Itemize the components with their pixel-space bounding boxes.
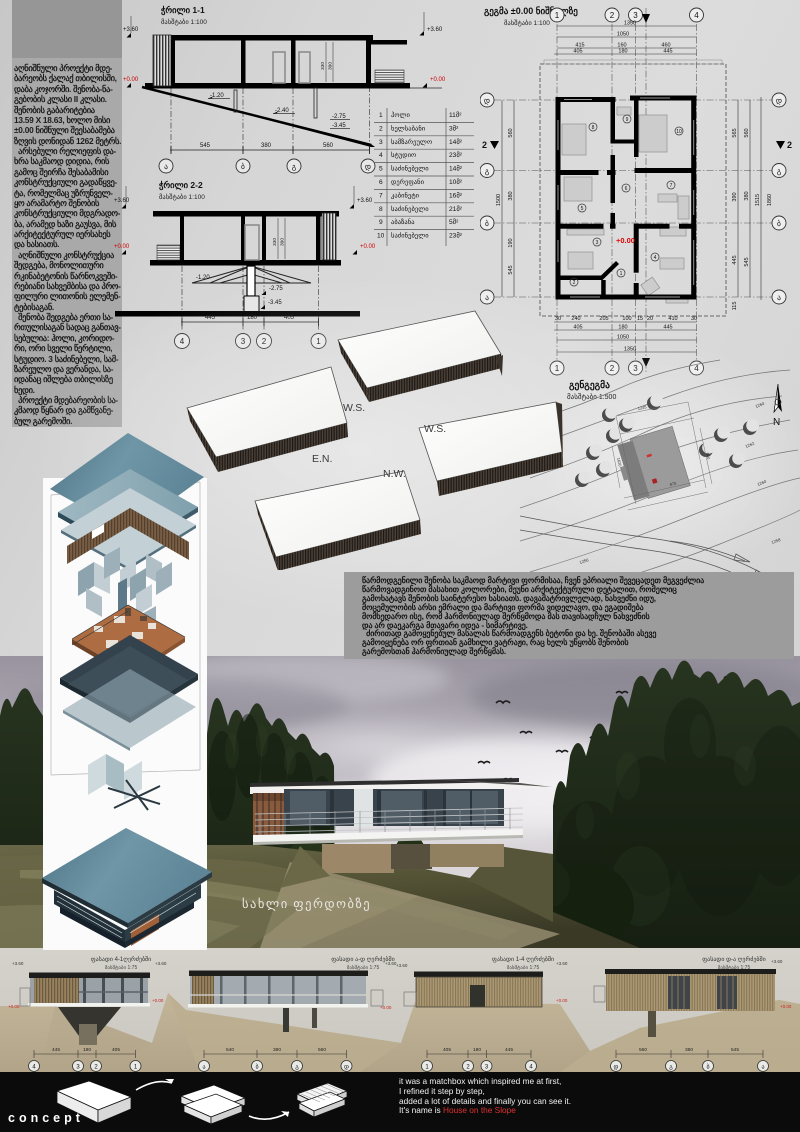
svg-text:1515: 1515: [755, 194, 761, 206]
svg-text:ფასადი 1-4 ღერძებში: ფასადი 1-4 ღერძებში: [492, 955, 554, 963]
svg-text:5მ²: 5მ²: [449, 218, 459, 226]
svg-text:10: 10: [676, 129, 682, 135]
svg-text:დ: დ: [484, 96, 491, 105]
svg-text:ფასადი დ-ა ღერძებში: ფასადი დ-ა ღერძებში: [702, 955, 766, 963]
svg-text:კაბინეტი: კაბინეტი: [391, 191, 420, 199]
svg-text:ბ: ბ: [706, 1063, 709, 1071]
svg-text:მასშტაბი 1:100: მასშტაბი 1:100: [161, 18, 207, 26]
svg-text:მასშტაბი 1:100: მასშტაბი 1:100: [159, 193, 205, 201]
svg-text:8: 8: [592, 125, 595, 131]
svg-text:გ: გ: [292, 162, 297, 171]
svg-text:ბ: ბ: [241, 162, 245, 171]
svg-text:გ: გ: [485, 167, 490, 176]
svg-text:9: 9: [379, 219, 383, 226]
svg-text:1050: 1050: [617, 32, 629, 38]
svg-text:3: 3: [633, 11, 638, 20]
svg-text:1500: 1500: [496, 194, 502, 206]
svg-text:+0.00: +0.00: [123, 77, 139, 83]
svg-text:16მ²: 16მ²: [449, 191, 463, 199]
svg-text:405: 405: [573, 49, 582, 55]
svg-text:მასშტაბი 1:75: მასშტაბი 1:75: [507, 964, 540, 971]
svg-text:445: 445: [663, 49, 672, 55]
svg-text:560: 560: [323, 143, 334, 149]
svg-text:+3.60: +3.60: [357, 198, 373, 204]
svg-text:3: 3: [596, 240, 599, 246]
svg-text:1: 1: [555, 11, 560, 20]
svg-text:560: 560: [639, 1047, 647, 1053]
svg-text:390: 390: [328, 62, 334, 70]
svg-text:180: 180: [618, 49, 627, 55]
svg-text:5: 5: [379, 166, 383, 173]
svg-text:ჭრილი 1-1: ჭრილი 1-1: [161, 5, 205, 16]
svg-text:560: 560: [744, 128, 750, 137]
svg-text:14მ²: 14მ²: [449, 165, 463, 173]
svg-text:380: 380: [744, 191, 750, 200]
svg-text:+3.60: +3.60: [123, 27, 139, 33]
svg-text:6: 6: [379, 179, 383, 186]
svg-text:დ: დ: [776, 96, 783, 105]
svg-text:გ: გ: [295, 1065, 299, 1071]
svg-text:ბ: ბ: [777, 219, 781, 228]
svg-text:7: 7: [379, 192, 383, 199]
svg-text:სტუდიო: სტუდიო: [391, 151, 417, 159]
svg-text:+0.00: +0.00: [780, 1004, 792, 1009]
svg-text:+3.60: +3.60: [556, 961, 568, 966]
svg-text:დერეფანი: დერეფანი: [391, 178, 425, 186]
svg-text:+3.60: +3.60: [114, 198, 130, 204]
svg-text:560: 560: [508, 128, 514, 137]
svg-text:W.S.: W.S.: [424, 423, 446, 435]
svg-text:1264: 1264: [755, 401, 766, 409]
svg-text:390: 390: [280, 238, 286, 246]
svg-text:გ: გ: [669, 1065, 673, 1071]
svg-text:ჰოლი: ჰოლი: [391, 111, 411, 119]
svg-text:გ: გ: [777, 167, 782, 176]
svg-text:445: 445: [52, 1047, 60, 1053]
svg-text:540: 540: [226, 1047, 234, 1053]
svg-text:3მ²: 3მ²: [449, 124, 459, 132]
svg-text:2: 2: [610, 11, 615, 20]
svg-text:აბაზანა: აბაზანა: [391, 218, 415, 226]
svg-text:1262: 1262: [745, 441, 756, 449]
svg-text:1260: 1260: [757, 479, 768, 487]
svg-text:4: 4: [694, 11, 699, 20]
svg-text:+0.00: +0.00: [616, 236, 635, 245]
svg-text:W.S.: W.S.: [343, 402, 365, 414]
svg-text:-2.40: -2.40: [275, 108, 289, 114]
svg-text:405: 405: [112, 1047, 120, 1053]
svg-text:560: 560: [318, 1047, 326, 1053]
svg-text:6: 6: [625, 186, 628, 192]
svg-text:1: 1: [379, 112, 383, 119]
svg-text:+3.60: +3.60: [385, 961, 397, 966]
svg-text:ა: ა: [761, 1065, 764, 1071]
svg-text:საძინებელი: საძინებელი: [391, 205, 429, 213]
svg-text:2: 2: [379, 125, 383, 132]
svg-text:დ: დ: [365, 162, 372, 171]
svg-text:380: 380: [685, 1047, 693, 1053]
svg-text:მასშტაბი 1:75: მასშტაბი 1:75: [347, 964, 380, 971]
svg-text:23მ²: 23მ²: [449, 151, 463, 159]
svg-text:21მ²: 21მ²: [449, 205, 463, 213]
svg-text:545: 545: [200, 143, 211, 149]
svg-text:სამზარეულო: სამზარეულო: [391, 138, 433, 146]
svg-text:N.W.: N.W.: [383, 468, 406, 480]
svg-text:+3.60: +3.60: [427, 27, 443, 33]
svg-text:1860: 1860: [767, 194, 773, 206]
svg-text:+3.60: +3.60: [155, 961, 167, 966]
svg-text:-3.45: -3.45: [332, 123, 346, 129]
svg-text:3: 3: [379, 139, 383, 146]
svg-text:+3.60: +3.60: [12, 961, 24, 966]
svg-text:ა: ა: [202, 1065, 205, 1071]
svg-text:14მ²: 14მ²: [449, 138, 463, 146]
svg-text:9: 9: [626, 117, 629, 123]
svg-text:940: 940: [705, 452, 711, 460]
svg-text:190: 190: [83, 1047, 91, 1053]
svg-text:-1.20: -1.20: [210, 93, 224, 99]
svg-text:330: 330: [320, 62, 326, 70]
svg-text:2: 2: [787, 140, 792, 150]
svg-text:390: 390: [732, 192, 738, 201]
svg-text:330: 330: [272, 238, 278, 246]
svg-text:1620: 1620: [616, 457, 623, 468]
svg-text:8: 8: [379, 206, 383, 213]
svg-text:190: 190: [508, 238, 514, 247]
svg-text:ბ: ბ: [485, 219, 489, 228]
svg-text:10: 10: [377, 233, 385, 240]
svg-text:405: 405: [443, 1047, 451, 1053]
svg-text:N: N: [773, 417, 780, 428]
svg-text:ა: ა: [164, 162, 168, 171]
svg-text:დ: დ: [614, 1065, 619, 1071]
svg-text:5: 5: [581, 206, 584, 212]
svg-text:1258: 1258: [771, 537, 782, 545]
svg-text:380: 380: [261, 143, 272, 149]
svg-text:მასშტაბი 1:100: მასშტაბი 1:100: [504, 19, 550, 27]
svg-text:დ: დ: [344, 1065, 349, 1071]
svg-text:ხელსაბანი: ხელსაბანი: [391, 124, 426, 132]
svg-text:+0.00: +0.00: [556, 998, 568, 1003]
svg-text:11მ²: 11მ²: [449, 111, 462, 119]
svg-text:+0.00: +0.00: [152, 998, 164, 1003]
svg-text:4: 4: [379, 152, 383, 159]
svg-text:+0.00: +0.00: [430, 77, 446, 83]
svg-text:545: 545: [731, 1047, 739, 1053]
svg-text:445: 445: [505, 1047, 513, 1053]
svg-text:+3.60: +3.60: [396, 963, 408, 968]
svg-text:+0.00: +0.00: [8, 1004, 20, 1009]
svg-text:2: 2: [482, 140, 487, 150]
svg-text:10მ²: 10მ²: [449, 178, 463, 186]
svg-text:565: 565: [732, 128, 738, 137]
svg-text:E.N.: E.N.: [312, 453, 332, 465]
svg-text:ბ: ბ: [255, 1063, 258, 1071]
svg-text:საძინებელი: საძინებელი: [391, 165, 429, 173]
svg-text:180: 180: [473, 1047, 481, 1053]
svg-text:ფასადი 4-1ღერძებში: ფასადი 4-1ღერძებში: [91, 955, 152, 963]
svg-text:ჭრილი 2-2: ჭრილი 2-2: [159, 180, 203, 191]
svg-text:1350: 1350: [624, 21, 636, 27]
svg-text:380: 380: [273, 1047, 281, 1053]
svg-text:+0.00: +0.00: [114, 244, 130, 250]
svg-text:საძინებელი: საძინებელი: [391, 232, 429, 240]
svg-text:მასშტაბი 1:75: მასშტაბი 1:75: [105, 964, 138, 971]
svg-text:-2.75: -2.75: [332, 114, 346, 120]
svg-text:380: 380: [508, 191, 514, 200]
svg-text:+3.60: +3.60: [771, 959, 783, 964]
svg-text:7: 7: [670, 183, 673, 189]
svg-text:23მ²: 23მ²: [449, 232, 463, 240]
